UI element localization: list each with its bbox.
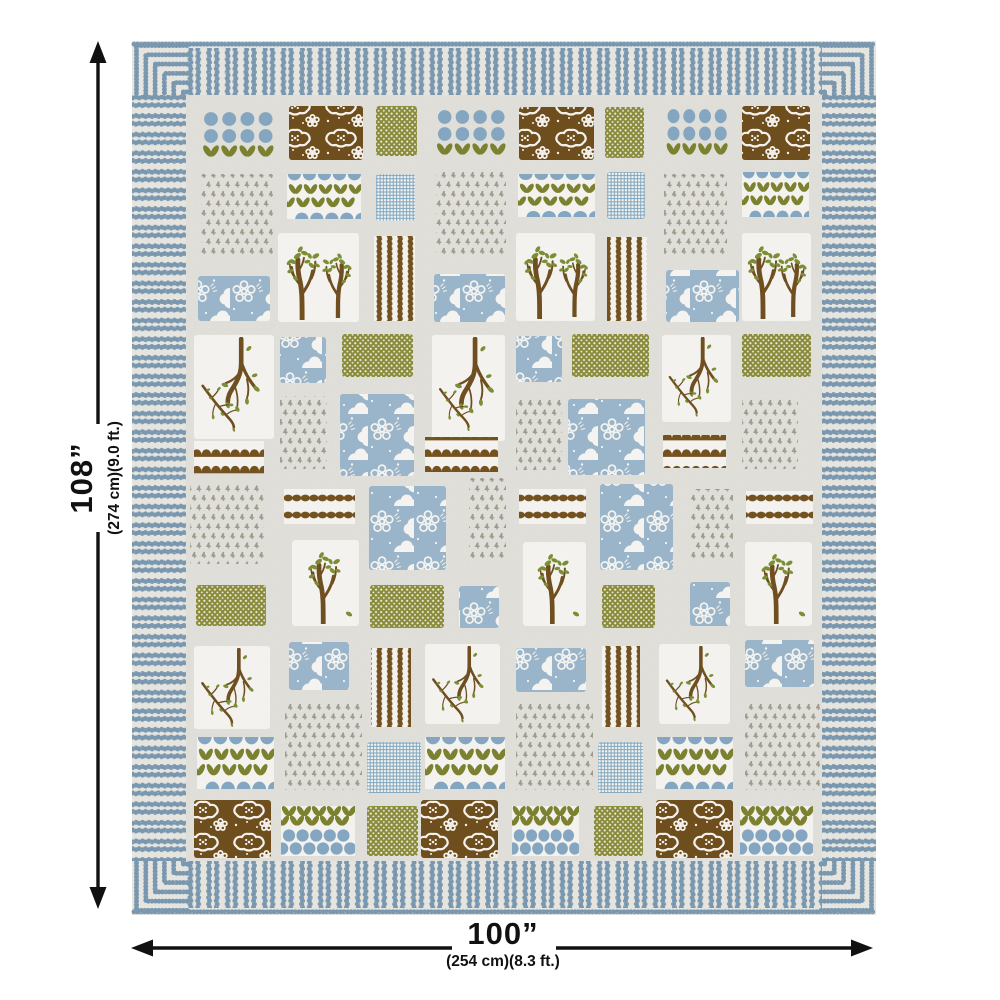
- svg-text:100”: 100”: [467, 916, 538, 951]
- svg-text:108”: 108”: [64, 442, 99, 513]
- svg-text:(254 cm)(8.3 ft.): (254 cm)(8.3 ft.): [446, 953, 560, 970]
- svg-text:(274 cm)(9.0 ft.): (274 cm)(9.0 ft.): [106, 421, 123, 535]
